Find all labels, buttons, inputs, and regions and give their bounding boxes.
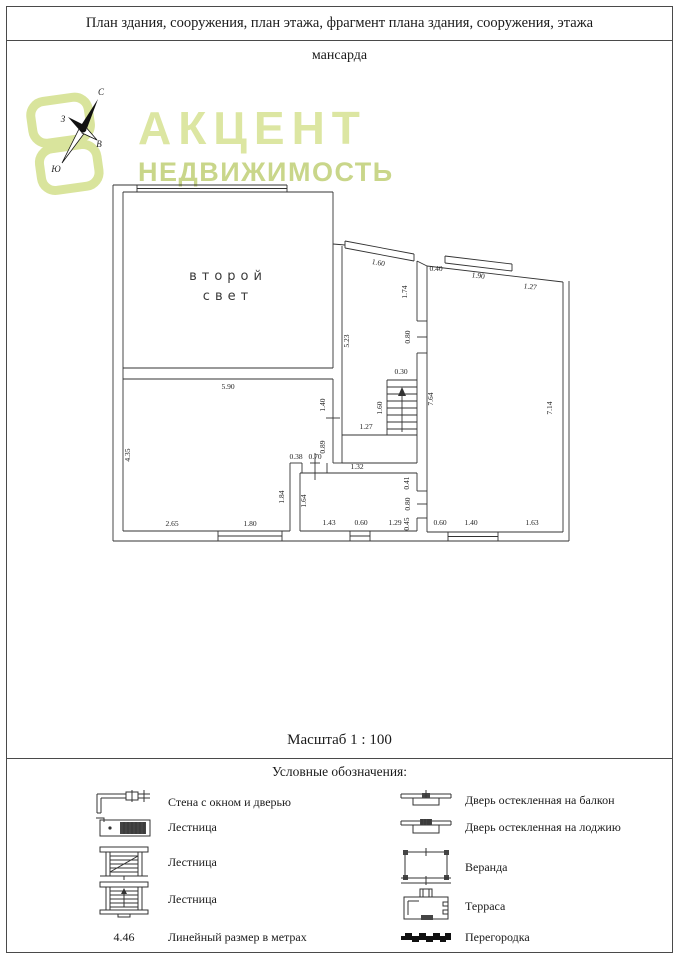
glazed-door-loggia-icon xyxy=(399,816,453,838)
legend-item: Веранда xyxy=(399,848,508,886)
legend-title: Условные обозначения: xyxy=(7,764,672,780)
dimension-label: 1.27 xyxy=(359,422,372,431)
dimension-label: 1.60 xyxy=(375,401,384,414)
legend-item: Лестница xyxy=(92,844,217,880)
legend-item: 4.46 Линейный размер в метрах xyxy=(92,930,307,945)
glazed-door-balcony-icon xyxy=(399,789,453,811)
legend-item: Лестница xyxy=(92,814,217,840)
staircase-icon xyxy=(92,844,156,880)
legend-label: Веранда xyxy=(465,860,508,875)
compass-label-north: С xyxy=(98,87,105,97)
veranda-icon xyxy=(399,848,453,886)
dimension-label: 0.70 xyxy=(308,452,321,461)
scale-label: Масштаб 1 : 100 xyxy=(7,732,672,749)
dimension-label: 1.40 xyxy=(464,518,477,527)
compass-rose: С З В Ю xyxy=(38,81,128,181)
compass-label-east: В xyxy=(96,139,102,149)
staircase-icon xyxy=(92,880,156,918)
dimension-label: 1.64 xyxy=(299,494,308,507)
wall-window-door-icon xyxy=(92,789,156,815)
legend-label: Лестница xyxy=(168,892,217,907)
legend-label: Стена с окном и дверью xyxy=(168,795,291,810)
dimension-label: 0.40 xyxy=(429,264,442,273)
room-label: второй xyxy=(189,269,267,284)
legend-item: Дверь остекленная на балкон xyxy=(399,789,615,811)
dimension-labels: 5.90 4.35 2.65 1.80 1.60 0.40 1.90 1.27 … xyxy=(123,257,554,531)
legend-item: Перегородка xyxy=(399,930,530,945)
document-frame: План здания, сооружения, план этажа, фра… xyxy=(6,6,673,953)
dimension-label: 0.60 xyxy=(433,518,446,527)
terrace-icon xyxy=(399,888,453,924)
scanned-floor-plan-page: { "header": { "title": "План здания, соо… xyxy=(0,0,679,960)
dimension-label: 0.41 xyxy=(402,476,411,489)
dimension-label: 5.23 xyxy=(342,334,351,347)
dimension-label: 1.43 xyxy=(322,518,335,527)
room-label: свет xyxy=(203,289,253,304)
dimension-label: 1.60 xyxy=(371,257,386,268)
brand-name: АКЦЕНТ xyxy=(138,101,367,155)
dimension-label: 1.29 xyxy=(388,518,401,527)
dimension-label: 7.64 xyxy=(426,392,435,405)
dimension-label: 1.27 xyxy=(523,281,537,292)
dimension-label: 0.38 xyxy=(289,452,302,461)
legend-label: Терраса xyxy=(465,899,505,914)
dimension-label: 1.63 xyxy=(525,518,538,527)
compass-center xyxy=(80,126,87,133)
legend-label: Перегородка xyxy=(465,930,530,945)
outer-contour xyxy=(113,185,569,541)
legend-label: Дверь остекленная на лоджию xyxy=(465,820,621,835)
compass-label-south: Ю xyxy=(50,164,61,174)
legend-section: Условные обозначения: Стена с окном и дв… xyxy=(7,759,672,952)
dimension-label: 0.80 xyxy=(403,497,412,510)
legend-item: Лестница xyxy=(92,880,217,918)
legend-label: Лестница xyxy=(168,820,217,835)
dimension-label: 0.80 xyxy=(403,330,412,343)
dimension-label: 7.14 xyxy=(545,401,554,414)
floor-plan: второй свет xyxy=(95,168,585,558)
room-right xyxy=(417,256,563,541)
legend-item: Дверь остекленная на лоджию xyxy=(399,816,621,838)
legend-label: Дверь остекленная на балкон xyxy=(465,793,615,808)
dimension-label: 1.40 xyxy=(318,398,327,411)
dimension-label: 2.65 xyxy=(165,519,178,528)
dimension-label: 1.84 xyxy=(277,490,286,503)
dimension-label: 4.35 xyxy=(123,448,132,461)
room-second-light xyxy=(123,185,333,531)
linear-dimension-sample: 4.46 xyxy=(92,930,156,945)
legend-item: Терраса xyxy=(399,888,505,924)
dimension-label: 1.80 xyxy=(243,519,256,528)
dimension-label: 0.30 xyxy=(394,367,407,376)
plan-section: мансарда АКЦЕНТ НЕДВИЖИМОСТЬ С З В xyxy=(7,41,672,759)
partition-icon xyxy=(399,932,453,944)
legend-label: Лестница xyxy=(168,855,217,870)
compass-label-west: З xyxy=(61,114,66,124)
dimension-label: 1.74 xyxy=(400,285,409,298)
legend-item: Стена с окном и дверью xyxy=(92,789,291,815)
stair-hall xyxy=(333,241,427,463)
dimension-label: 1.90 xyxy=(471,270,485,281)
dimension-label: 0.60 xyxy=(354,518,367,527)
document-title: План здания, сооружения, план этажа, фра… xyxy=(7,7,672,41)
dimension-label: 0.45 xyxy=(402,517,411,530)
dimension-label: 5.90 xyxy=(221,382,234,391)
floor-subtitle: мансарда xyxy=(7,48,672,64)
dimension-label: 1.32 xyxy=(350,462,363,471)
staircase-icon xyxy=(92,814,156,840)
legend-label: Линейный размер в метрах xyxy=(168,930,307,945)
